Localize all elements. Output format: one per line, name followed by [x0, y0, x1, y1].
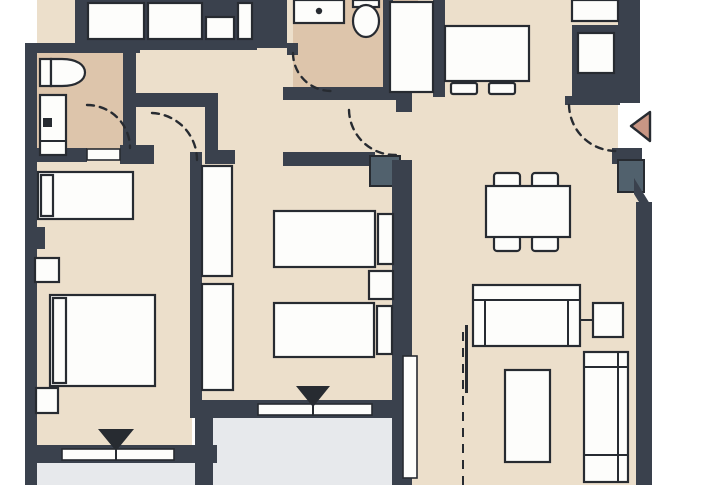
chair-icon	[494, 236, 520, 251]
wall-bedroom2-door-stub	[205, 150, 235, 164]
wall-bedroom2-left	[190, 152, 202, 408]
closet-cell-icon	[148, 3, 202, 39]
floor-plan	[0, 0, 726, 485]
wall-shower-right	[433, 0, 445, 97]
wall-exterior-right	[636, 202, 652, 485]
floor-plan-canvas	[0, 0, 726, 485]
wall-vestibule-top	[136, 93, 218, 107]
side-table-icon	[593, 303, 623, 337]
closet-cell-icon	[206, 17, 234, 39]
wall-vestibule-right	[205, 107, 218, 157]
balcony-main-floor	[213, 418, 392, 485]
wall-bath1-right	[123, 43, 136, 150]
wall-bath1-top	[25, 43, 140, 53]
coffee-table-icon	[505, 370, 550, 462]
closet-cell-icon	[88, 3, 144, 39]
window-bedroom-1	[62, 449, 174, 460]
closet-cell-icon	[238, 3, 252, 39]
kitchen-counter-icon	[572, 0, 618, 21]
entrance-pier	[618, 160, 644, 192]
bed-icon	[274, 211, 375, 267]
wardrobe-icon	[202, 166, 232, 276]
wall-balcony-divider	[195, 418, 213, 485]
wall-bedroom2-top	[283, 152, 375, 166]
window-living-room	[403, 356, 417, 478]
nightstand-icon	[369, 271, 393, 299]
toilet-icon	[353, 5, 379, 37]
kitchen-island-icon	[445, 26, 529, 81]
kitchen-appliance-icon	[578, 33, 614, 73]
wall-pier	[25, 227, 45, 249]
stool-icon	[451, 83, 477, 94]
stool-icon	[489, 83, 515, 94]
pillow-icon	[377, 306, 392, 354]
wall-hall-door-post	[396, 100, 412, 112]
wardrobe-icon	[202, 284, 233, 390]
nightstand-icon	[36, 388, 58, 413]
pillow-icon	[378, 214, 393, 264]
entrance-arrow-icon	[631, 112, 650, 141]
pillow-icon	[41, 175, 53, 216]
wall-closet-bath2	[253, 0, 287, 48]
window-bedroom-2	[258, 404, 372, 415]
door-leaf-bathroom-1	[87, 149, 120, 160]
floor-lamp-line	[465, 325, 468, 393]
shower-stall-icon	[390, 2, 433, 92]
sink-drain-icon	[316, 8, 322, 14]
armchair-icon	[584, 352, 628, 482]
wall-entrance-top	[565, 96, 620, 105]
dining-table-icon	[486, 186, 570, 237]
chair-icon	[532, 236, 558, 251]
shower-fixture-icon	[43, 118, 52, 127]
pillow-icon	[53, 298, 66, 383]
bed-icon	[274, 303, 374, 357]
balcony-left-floor	[37, 463, 215, 485]
nightstand-icon	[35, 258, 59, 282]
sofa-icon	[473, 285, 580, 346]
toilet-tank-icon	[40, 59, 51, 86]
wall-vestibule-corner	[120, 145, 154, 164]
toilet-icon	[51, 59, 85, 86]
